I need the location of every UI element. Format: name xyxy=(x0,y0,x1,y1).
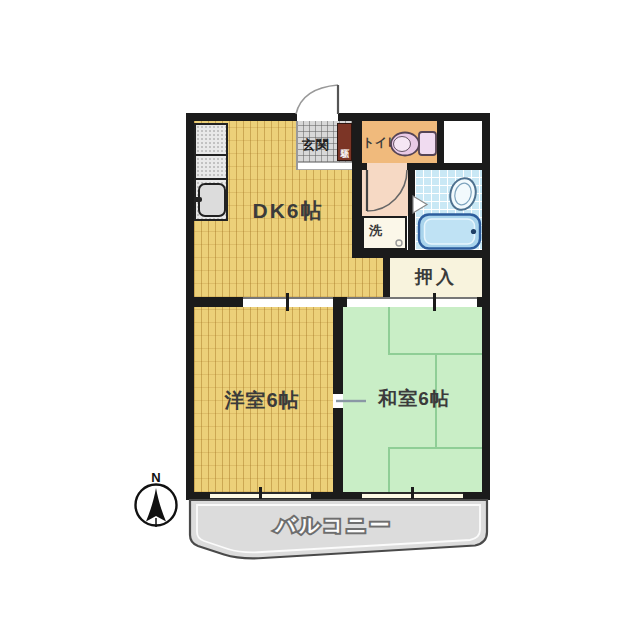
pipe-space xyxy=(444,121,482,163)
floor-plan: 下駄箱 DK6帖 洋室6帖 和室6帖 押入 玄関 トイレ 洗 xyxy=(0,0,640,640)
western-room-label: 洋室6帖 xyxy=(224,387,299,414)
tatami-line xyxy=(388,447,390,492)
wall-segment xyxy=(352,121,362,250)
counter-divider xyxy=(194,154,228,156)
wall-segment xyxy=(408,163,415,250)
toilet-label: トイレ xyxy=(363,134,400,151)
wall-segment xyxy=(338,113,490,121)
north-label: N xyxy=(151,470,160,485)
window-tick xyxy=(411,487,414,505)
wall-segment xyxy=(311,492,362,500)
door-tick xyxy=(433,293,436,311)
window-tick xyxy=(259,487,262,505)
fusuma-opening xyxy=(347,297,477,307)
wall-segment xyxy=(186,113,297,121)
hallway xyxy=(362,163,408,216)
balcony: バルコニー xyxy=(190,500,487,558)
wall-segment xyxy=(362,163,367,170)
wall-segment xyxy=(186,492,210,500)
entrance-step xyxy=(297,162,352,170)
wall-segment xyxy=(477,297,490,307)
compass-icon: N xyxy=(136,470,177,527)
wall-segment xyxy=(352,250,490,258)
balcony-label: バルコニー xyxy=(275,514,393,536)
wall-segment xyxy=(407,163,490,170)
tatami-line xyxy=(388,447,482,449)
wall-segment xyxy=(383,258,390,297)
entrance-door-icon xyxy=(296,85,338,114)
tatami-line xyxy=(388,307,390,353)
wall-segment xyxy=(333,307,343,492)
wall-segment xyxy=(463,492,490,500)
counter-divider xyxy=(194,178,228,180)
door-tick xyxy=(286,293,289,311)
bathroom-floor xyxy=(415,170,482,250)
kitchen-sink xyxy=(198,183,226,217)
shoe-cabinet: 下駄箱 xyxy=(337,123,352,161)
japanese-room-label: 和室6帖 xyxy=(378,386,450,412)
entrance-label: 玄関 xyxy=(302,136,330,154)
laundry-label: 洗 xyxy=(369,222,383,240)
wall-segment xyxy=(186,297,243,307)
entrance-edge-line xyxy=(296,121,298,170)
closet-label: 押入 xyxy=(415,265,457,289)
dk-label: DK6帖 xyxy=(252,197,323,225)
wall-segment xyxy=(437,121,444,163)
wall-segment xyxy=(333,297,347,307)
